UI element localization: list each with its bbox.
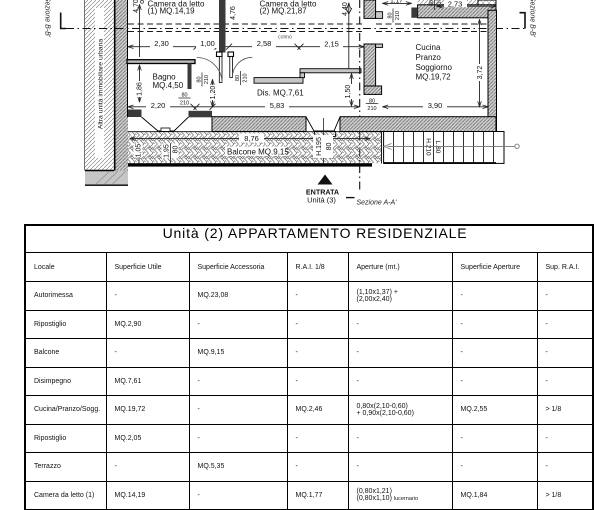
svg-text:4,76: 4,76 (230, 6, 237, 20)
svg-text:Sezione B-B': Sezione B-B' (529, 0, 536, 38)
svg-text:2,15: 2,15 (324, 40, 339, 49)
svg-text:1,20: 1,20 (210, 86, 217, 100)
svg-text:1,05: 1,05 (136, 144, 143, 158)
svg-text:80: 80 (235, 75, 241, 81)
svg-text:MQ.4,50: MQ.4,50 (153, 81, 184, 90)
svg-text:Cucina: Cucina (416, 43, 441, 52)
svg-text:210: 210 (180, 101, 189, 107)
svg-text:Balcone MQ.9,15: Balcone MQ.9,15 (227, 148, 289, 157)
svg-text:Dis. MQ.7,61: Dis. MQ.7,61 (257, 89, 304, 98)
svg-text:80: 80 (326, 143, 333, 151)
svg-text:5,83: 5,83 (270, 101, 285, 110)
svg-text:1,86: 1,86 (137, 82, 144, 96)
svg-text:210: 210 (436, 0, 442, 8)
svg-text:3,72: 3,72 (477, 66, 484, 80)
svg-text:2,20: 2,20 (151, 101, 166, 110)
svg-text:1,50: 1,50 (345, 85, 352, 99)
svg-text:1,17: 1,17 (390, 0, 403, 5)
svg-text:(2) MQ.21,87: (2) MQ.21,87 (260, 7, 308, 16)
svg-text:80: 80 (173, 146, 180, 154)
svg-text:colmo: colmo (278, 35, 292, 41)
svg-text:80: 80 (388, 12, 394, 18)
svg-text:Soggiorno: Soggiorno (416, 63, 453, 72)
svg-text:4,70: 4,70 (133, 0, 140, 13)
svg-text:Unità (3): Unità (3) (307, 196, 336, 205)
svg-text:210: 210 (367, 106, 376, 112)
svg-text:8,76: 8,76 (244, 134, 259, 143)
svg-text:1,00: 1,00 (200, 39, 215, 48)
svg-text:2,30: 2,30 (154, 39, 169, 48)
svg-text:210: 210 (395, 11, 401, 20)
svg-text:(1) MQ.14,19: (1) MQ.14,19 (148, 7, 196, 16)
svg-text:L.80: L.80 (434, 141, 441, 154)
svg-text:80: 80 (197, 76, 203, 82)
svg-text:Sezione B-B': Sezione B-B' (44, 0, 51, 38)
svg-text:2,73: 2,73 (448, 0, 463, 9)
svg-text:MQ.19,72: MQ.19,72 (416, 73, 452, 82)
svg-text:80: 80 (181, 93, 187, 99)
svg-text:Pranzo: Pranzo (416, 53, 442, 62)
svg-text:1,95: 1,95 (164, 144, 171, 158)
svg-text:4,40: 4,40 (342, 2, 349, 16)
svg-text:H.195: H.195 (316, 137, 323, 156)
svg-text:210: 210 (204, 75, 210, 84)
svg-text:210: 210 (243, 73, 249, 82)
svg-text:Altra unità immobiliare urbana: Altra unità immobiliare urbana (98, 39, 105, 130)
svg-text:H.210: H.210 (425, 138, 432, 156)
svg-text:3,90: 3,90 (428, 101, 443, 110)
svg-text:Sezione A-A': Sezione A-A' (357, 200, 398, 207)
svg-text:2,58: 2,58 (257, 39, 272, 48)
